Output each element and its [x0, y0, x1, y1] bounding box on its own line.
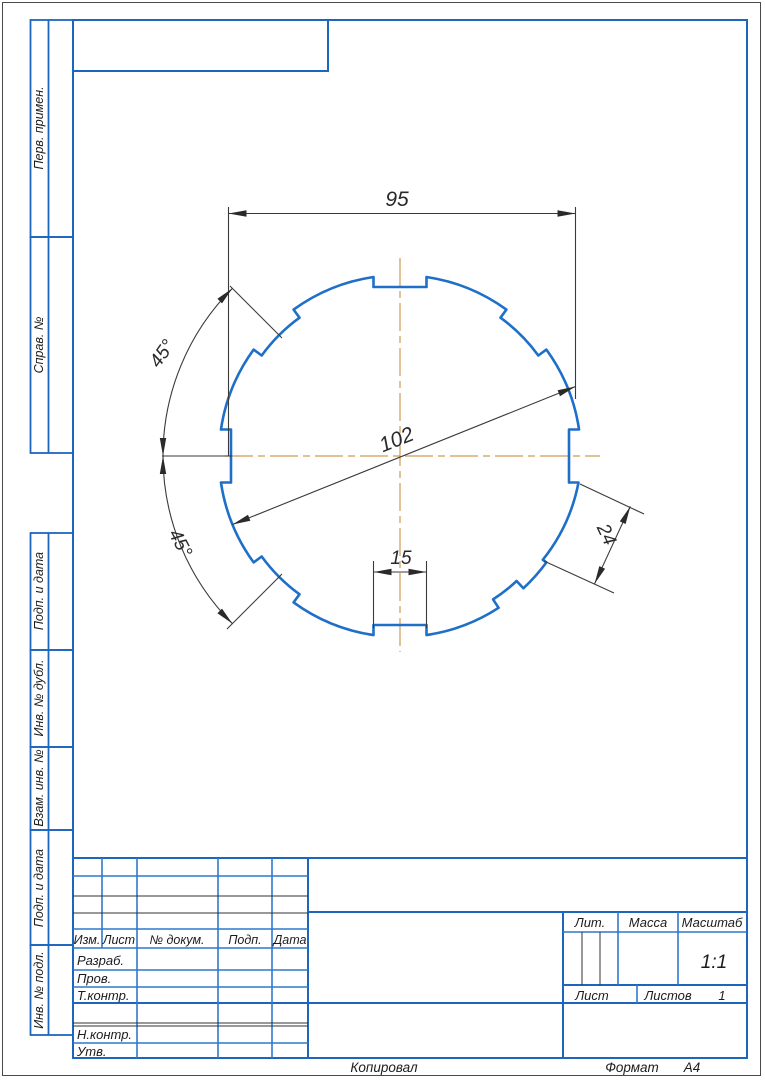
title-block-right: Лит. Масса Масштаб 1:1 Лист Листов 1: [574, 915, 743, 1003]
dim-95-text: 95: [385, 188, 409, 211]
margin-label-inv-dubl: Инв. № дубл.: [32, 660, 46, 737]
format-label: Формат: [605, 1060, 659, 1075]
col-data: Дата: [272, 933, 307, 947]
angle-upper-arc: [163, 288, 232, 456]
arrow-angle-upper-bottom: [160, 438, 166, 456]
row-tkontr: Т.контр.: [77, 988, 129, 1003]
arrow-102-lower: [233, 515, 251, 525]
arrow-angle-upper-top: [217, 288, 232, 303]
margin-label-inv-podl: Инв. № подл.: [32, 951, 46, 1029]
row-prov: Пров.: [77, 971, 111, 986]
drawing-canvas: Перв. примен. Справ. № Подп. и дата Инв.…: [0, 0, 765, 1080]
centerlines: [225, 258, 600, 652]
listov-value: 1: [718, 988, 725, 1003]
arrow-angle-lower-top: [160, 456, 166, 474]
margin-labels: Перв. примен. Справ. № Подп. и дата Инв.…: [32, 86, 46, 1028]
arrow-95-left: [229, 210, 247, 216]
arrow-angle-lower-bottom: [217, 609, 232, 624]
bottom-margin: Копировал Формат А4: [350, 1060, 700, 1075]
massa-label: Масса: [629, 915, 667, 930]
masshtab-label: Масштаб: [682, 915, 743, 930]
kopiroval-label: Копировал: [350, 1060, 418, 1075]
col-dokum: № докум.: [149, 933, 204, 947]
arrow-15-right: [409, 569, 427, 575]
scale-value: 1:1: [701, 952, 727, 973]
col-podp: Подп.: [228, 933, 261, 947]
arrow-15-left: [374, 569, 392, 575]
margin-label-sprav-n: Справ. №: [32, 316, 46, 373]
margin-label-vzam-inv: Взам. инв. №: [32, 749, 46, 827]
top-left-extra-box: [73, 20, 328, 71]
angle-lower-ray: [227, 574, 282, 629]
col-izm: Изм.: [74, 933, 101, 947]
row-utv: Утв.: [76, 1044, 107, 1059]
col-list: Лист: [102, 933, 135, 947]
margin-label-perv-primen: Перв. примен.: [32, 86, 46, 169]
row-nkontr: Н.контр.: [77, 1027, 132, 1042]
lit-label: Лит.: [574, 915, 605, 930]
dim-24-ext-upper: [580, 484, 644, 514]
dimension-texts: 95 102 15 24 45° 45°: [146, 188, 620, 569]
arrow-24-upper: [620, 506, 631, 524]
drawing-sheet: Перв. примен. Справ. № Подп. и дата Инв.…: [0, 0, 765, 1080]
angle-upper-text: 45°: [146, 336, 180, 372]
listov-label: Листов: [643, 988, 692, 1003]
dim-24-text: 24: [592, 520, 620, 549]
dim-24-ext-lower: [544, 561, 614, 593]
angle-lower-text: 45°: [164, 526, 196, 562]
format-value: А4: [683, 1060, 701, 1075]
list-label: Лист: [574, 988, 609, 1003]
arrow-24-lower: [595, 566, 606, 584]
dim-15-text: 15: [390, 548, 412, 569]
margin-label-podp-data-1: Подп. и дата: [32, 552, 46, 630]
angle-upper-ray: [230, 286, 282, 338]
margin-label-podp-data-2: Подп. и дата: [32, 849, 46, 927]
arrow-95-right: [558, 210, 576, 216]
row-razrab: Разраб.: [77, 953, 124, 968]
title-block: Изм. Лист № докум. Подп. Дата Разраб. Пр…: [73, 858, 747, 1059]
